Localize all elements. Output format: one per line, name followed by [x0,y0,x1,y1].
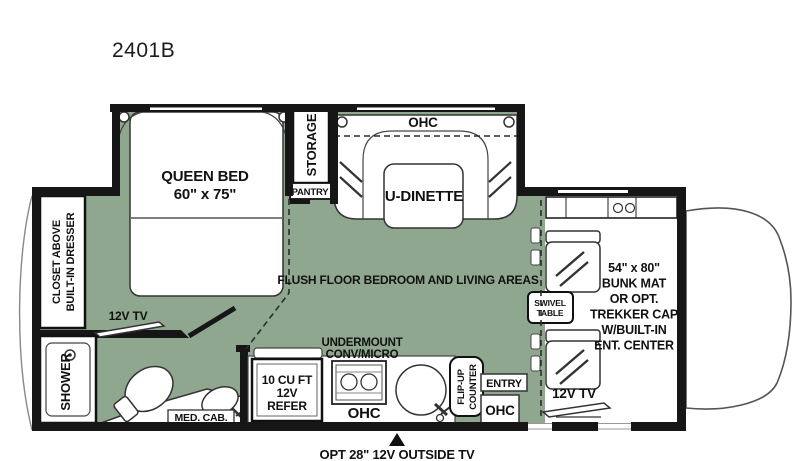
dinette-slideout: OHC U-DINETTE [334,115,517,228]
refer-label-1: 10 CU FT [262,373,313,387]
cab-area: SWIVEL TABLE 54" x 80" BUNK MAT OR OPT. … [528,197,678,417]
dinette-ohc-label: OHC [408,115,438,130]
pantry-wall-stub [290,199,310,204]
refer-label-2: 12V [277,386,298,400]
bunk-label-2: BUNK MAT [602,277,667,291]
living-tv [543,403,610,417]
cab-seat-back [546,330,600,342]
seat-armrest [531,334,540,349]
queen-bed-label-2: 60" x 75" [174,186,237,203]
outside-tv-label: OPT 28" 12V OUTSIDE TV [320,447,475,461]
arrow-up-icon [389,433,405,446]
u-dinette-label: U-DINETTE [385,188,463,205]
entry-ohc-label: OHC [485,403,515,418]
storage-pantry: STORAGE PANTRY [290,107,331,204]
flip-up-label-1: FLIP-UP [456,368,467,404]
rear-wall [32,187,40,431]
entry-label: ENTRY [486,378,523,390]
closet-dresser: CLOSET ABOVE BUILT-IN DRESSER [40,196,85,328]
seat-armrest [531,250,540,265]
queen-bed [130,112,283,296]
closet-label-2: BUILT-IN DRESSER [65,212,77,311]
bunk-label-4: TREKKER CAP [590,308,678,322]
dinette-light-right-icon [504,117,514,127]
front-body-wall [677,187,686,431]
bedroom-window [150,108,262,111]
bunk-label-3: OR OPT. [610,292,659,306]
bath-kitchen-wall [240,352,248,423]
seat-armrest [531,356,540,371]
queen-bed-label-1: QUEEN BED [161,168,249,185]
cooktop [332,361,386,404]
outside-tv-callout: OPT 28" 12V OUTSIDE TV [320,433,475,461]
dinette-window [357,108,495,111]
seat-armrest [531,228,540,243]
cab-seat-back [546,231,600,243]
bed-slide-right-wall [285,104,293,196]
cab-hood-outline [686,208,791,409]
bottom-wall-mid [552,422,598,431]
refer-label-3: REFER [267,399,307,413]
bedroom-slideout: QUEEN BED 60" x 75" [117,111,289,296]
bottom-wall-left [32,422,528,431]
dinette-slide-right-wall [517,104,525,196]
bedroom-tv-label: 12V TV [109,309,148,323]
flip-up-label-2: COUNTER [468,364,479,410]
pantry-label: PANTRY [292,187,330,198]
floorplan-drawing: 2401B QUEEN BED 60" x 75" STORAGE PANTRY [0,0,800,461]
cupholder-icon [626,204,635,213]
dinette-slide-left-wall [330,104,338,204]
bunk-label-1: 54" x 80" [608,261,660,275]
cab-seat [546,242,600,292]
floorplan-page: 2401B QUEEN BED 60" x 75" STORAGE PANTRY [0,0,800,461]
top-left-wall [32,187,118,196]
bunk-label-5: W/BUILT-IN [601,323,666,337]
kitchen-ohc-label: OHC [348,405,381,422]
dinette-light-left-icon [337,117,347,127]
rear-cap-curve [20,196,32,430]
shower-label: SHOWER [58,353,73,411]
cab-seat [546,341,600,389]
model-number: 2401B [112,39,175,62]
bottom-wall-right [631,422,686,431]
storage-label: STORAGE [304,113,319,176]
bed-slide-left-wall [112,104,120,196]
flush-floor-note: FLUSH FLOOR BEDROOM AND LIVING AREAS [277,273,538,287]
reading-light-left-icon [119,112,129,122]
undermount-label-1: UNDERMOUNT [321,337,402,349]
living-tv-label: 12V TV [552,386,596,401]
closet-label-1: CLOSET ABOVE [51,220,63,304]
cupholder-icon [614,204,623,213]
undermount-label-2: CONV/MICRO [326,349,399,361]
swivel-label-1: SWIVEL [534,298,565,308]
cab-window [558,190,628,193]
cab-front [686,208,791,409]
refer-top-shelf [254,348,322,358]
bunk-label-6: ENT. CENTER [594,339,674,353]
